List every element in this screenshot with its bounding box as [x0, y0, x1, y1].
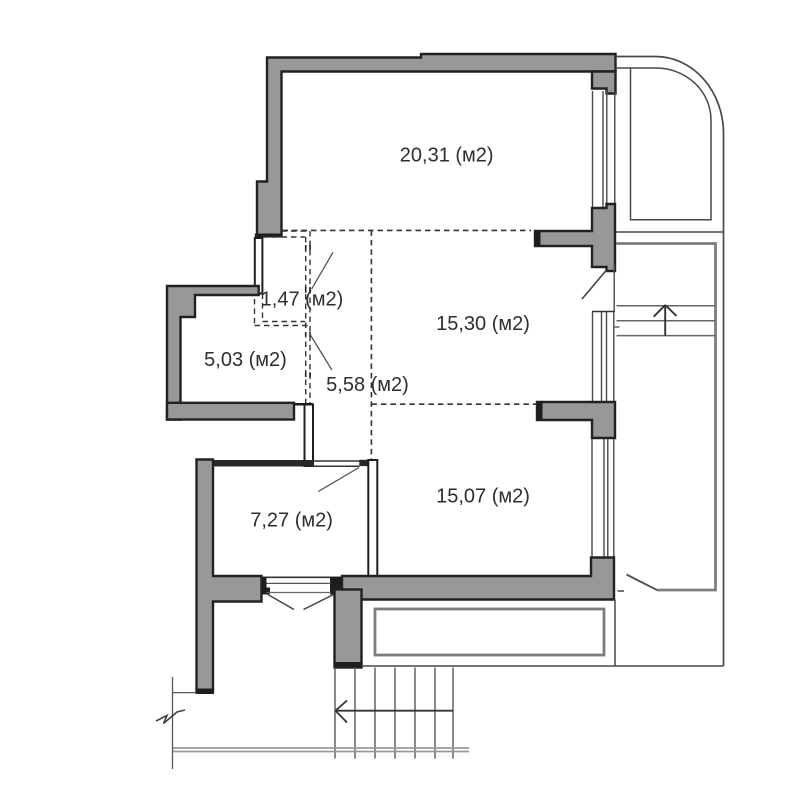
svg-text:5,58 (м2): 5,58 (м2): [326, 374, 409, 396]
svg-text:20,31 (м2): 20,31 (м2): [400, 145, 494, 167]
svg-text:5,03 (м2): 5,03 (м2): [204, 349, 287, 371]
svg-text:7,27 (м2): 7,27 (м2): [250, 510, 333, 532]
svg-text:15,30 (м2): 15,30 (м2): [436, 313, 530, 335]
svg-text:15,07 (м2): 15,07 (м2): [436, 486, 530, 508]
svg-text:1,47 (м2): 1,47 (м2): [261, 289, 344, 311]
